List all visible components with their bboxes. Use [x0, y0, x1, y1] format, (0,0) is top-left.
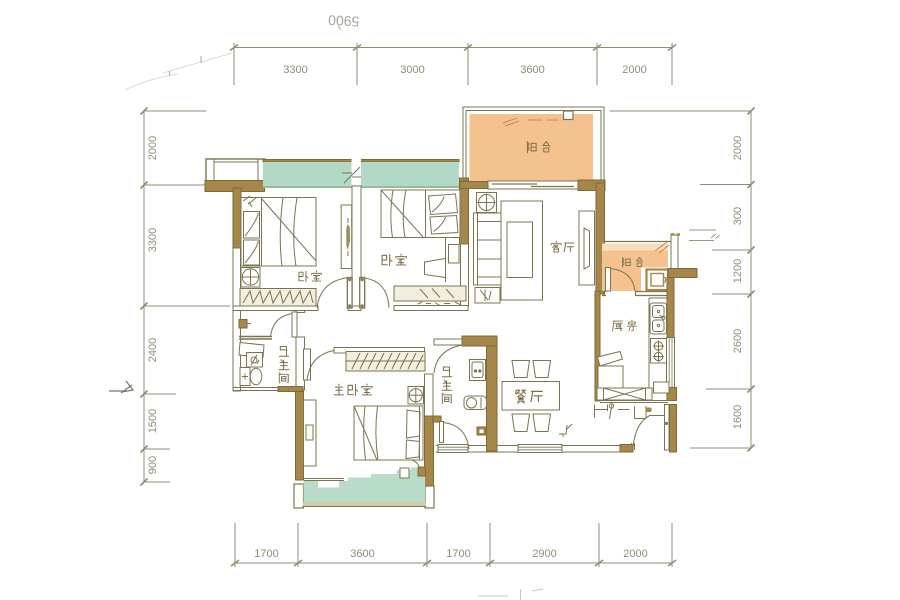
svg-text:1700: 1700 — [446, 548, 470, 560]
svg-text:2000: 2000 — [623, 548, 647, 560]
svg-text:1700: 1700 — [254, 548, 278, 560]
svg-text:2900: 2900 — [532, 548, 556, 560]
svg-text:3600: 3600 — [520, 64, 544, 76]
svg-text:2000: 2000 — [622, 64, 646, 76]
svg-text:1200: 1200 — [732, 259, 744, 283]
svg-text:2600: 2600 — [732, 329, 744, 353]
svg-text:900: 900 — [147, 456, 159, 474]
svg-text:300: 300 — [732, 207, 744, 225]
svg-text:2000: 2000 — [147, 136, 159, 160]
svg-text:2400: 2400 — [147, 338, 159, 362]
svg-text:3600: 3600 — [350, 548, 374, 560]
svg-text:1600: 1600 — [732, 405, 744, 429]
svg-text:1500: 1500 — [147, 409, 159, 433]
svg-text:5900: 5900 — [328, 12, 360, 30]
svg-text:3000: 3000 — [400, 64, 424, 76]
svg-text:3300: 3300 — [147, 228, 159, 252]
svg-text:3300: 3300 — [283, 64, 307, 76]
svg-text:2000: 2000 — [732, 136, 744, 160]
